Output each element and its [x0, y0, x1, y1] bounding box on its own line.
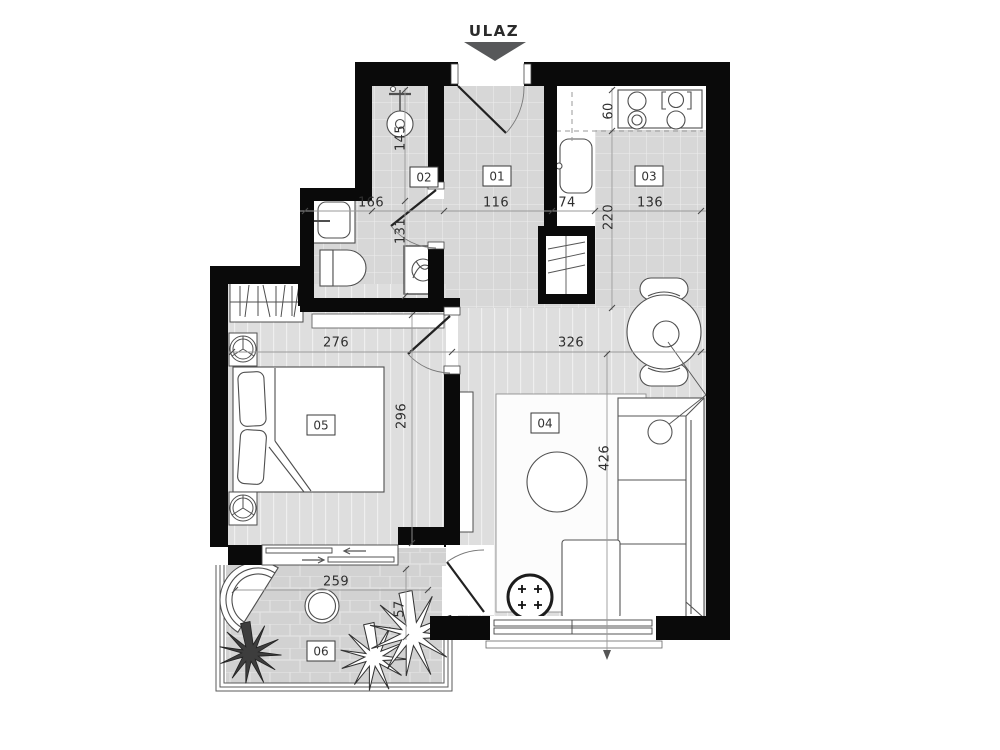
balcony-table-icon — [305, 589, 339, 623]
toilet-icon — [320, 250, 366, 286]
dim-counter-depth: 60 — [603, 102, 616, 119]
dim-counter-width: 74 — [558, 197, 575, 210]
dim-kitchen-width: 136 — [637, 197, 663, 210]
nightstand-icon — [229, 492, 257, 525]
balcony-door — [446, 545, 494, 615]
tv-stand — [458, 392, 473, 532]
dim-living-width: 326 — [558, 337, 584, 350]
plan-graphics — [0, 0, 1000, 750]
wardrobe-icon — [230, 280, 303, 322]
room-label-kitchen: 03 — [635, 166, 664, 187]
dim-living-len: 426 — [599, 445, 612, 471]
room-label-hallway: 01 — [483, 166, 512, 187]
living-window — [486, 616, 662, 648]
vent-shaft — [538, 226, 595, 304]
room-label-living-room: 04 — [531, 413, 560, 434]
dim-bedroom-len: 296 — [396, 403, 409, 429]
washbasin-icon — [313, 197, 355, 243]
room-label-bathroom: 02 — [410, 167, 439, 188]
dim-kitchen-len: 220 — [603, 204, 616, 230]
entrance-label: ULAZ — [469, 22, 519, 40]
dim-hall-width: 116 — [483, 197, 509, 210]
nightstand-icon — [229, 333, 257, 366]
floor-plan: ULAZ 01 02 03 04 05 06 145 166 131 116 7… — [0, 0, 1000, 750]
dim-bedroom-width: 276 — [323, 337, 349, 350]
ottoman — [562, 540, 620, 618]
sliding-door — [262, 545, 398, 565]
pouf-icon — [508, 575, 552, 619]
entrance-arrow-icon — [464, 42, 526, 61]
dim-balcony-width: 259 — [323, 576, 349, 589]
dining-table-icon — [627, 295, 701, 369]
coffee-table-icon — [527, 452, 587, 512]
stove-icon — [618, 90, 702, 129]
dim-bath-width: 166 — [358, 197, 384, 210]
room-label-balcony: 06 — [307, 641, 336, 662]
dim-bath-lower-len: 131 — [395, 218, 408, 244]
dim-balcony-depth: 57 — [394, 600, 407, 617]
shelf — [312, 314, 444, 328]
dim-bath-upper-len: 145 — [395, 125, 408, 151]
room-label-bedroom: 05 — [307, 415, 336, 436]
